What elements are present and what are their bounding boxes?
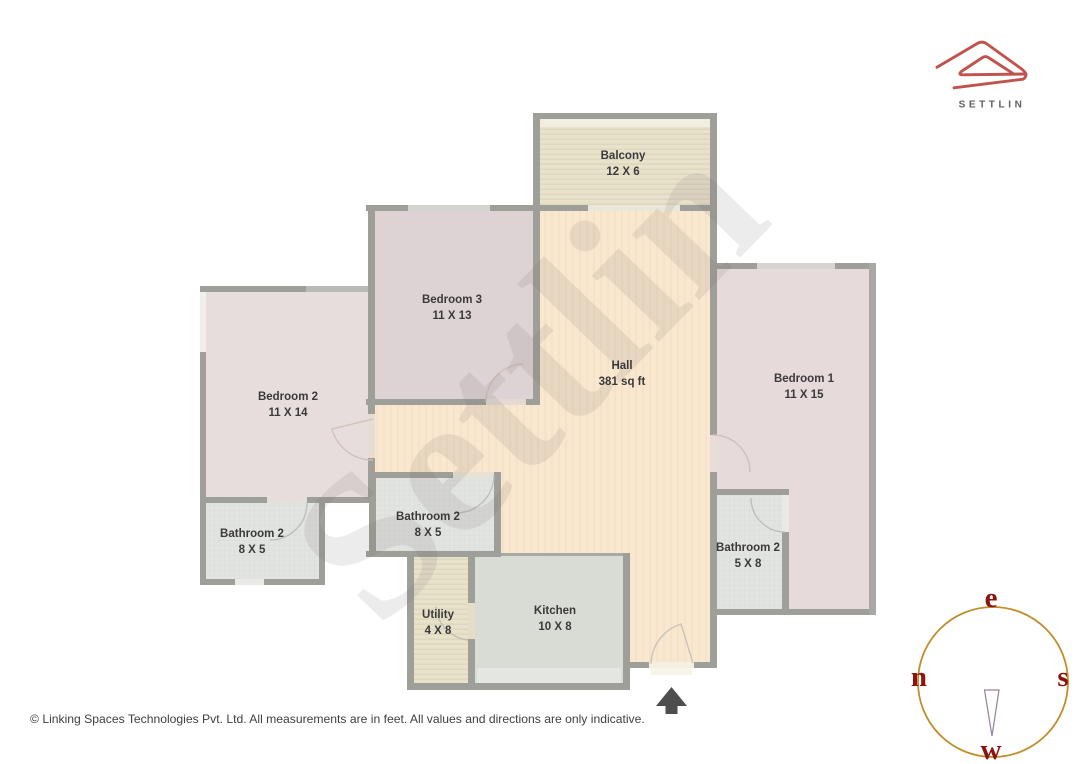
svg-text:e: e	[985, 582, 998, 614]
svg-text:s: s	[1057, 661, 1068, 693]
svg-text:n: n	[911, 661, 927, 693]
svg-text:w: w	[981, 734, 1002, 764]
